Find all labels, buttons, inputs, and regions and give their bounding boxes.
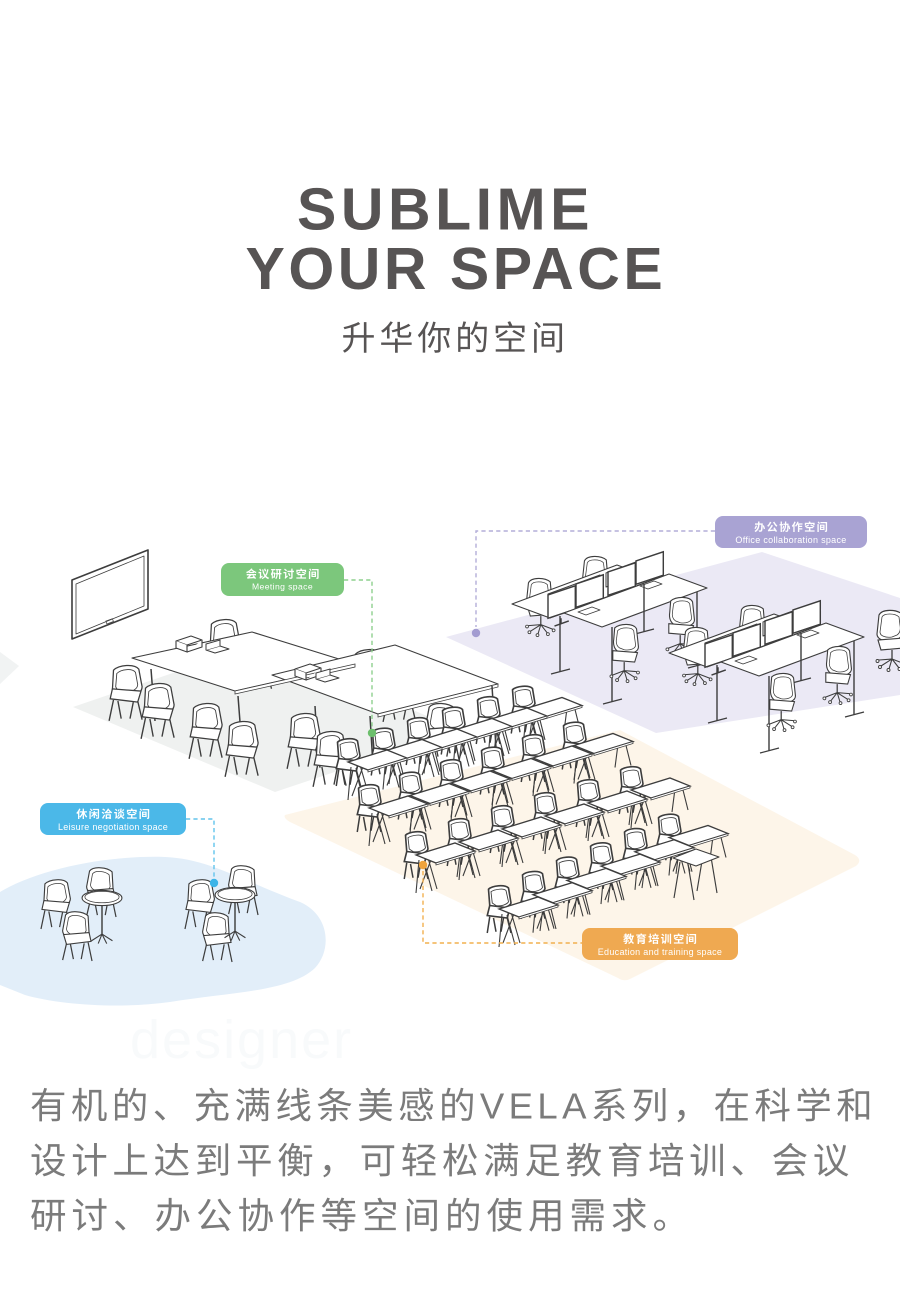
svg-text:YOUR SPACE: YOUR SPACE bbox=[246, 236, 667, 302]
svg-text:Leisure negotiation space: Leisure negotiation space bbox=[58, 822, 168, 832]
svg-text:Meeting space: Meeting space bbox=[252, 582, 313, 592]
svg-text:Office collaboration space: Office collaboration space bbox=[735, 535, 846, 545]
svg-text:designer: designer bbox=[130, 1010, 353, 1070]
svg-text:SUBLIME: SUBLIME bbox=[297, 177, 594, 243]
svg-text:Education and training space: Education and training space bbox=[598, 947, 722, 957]
svg-text:VELA: VELA bbox=[480, 1086, 591, 1127]
